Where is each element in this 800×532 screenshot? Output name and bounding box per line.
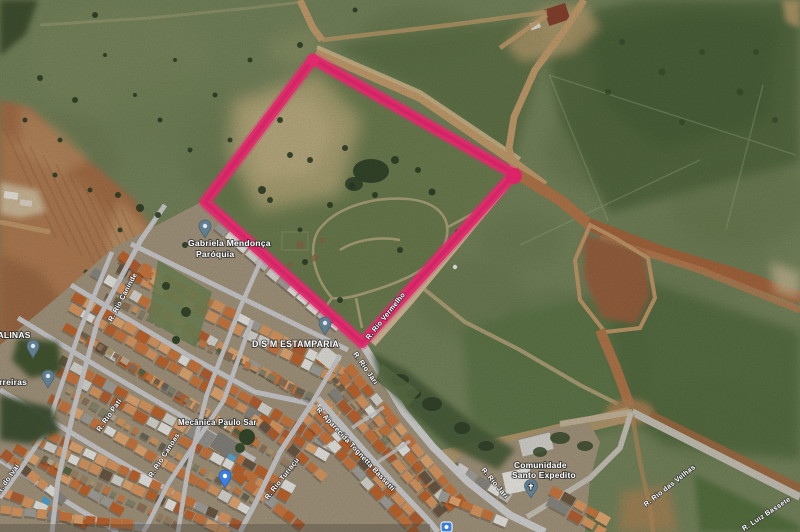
svg-text:D S M ESTAMPARIA: D S M ESTAMPARIA — [252, 339, 339, 349]
svg-text:Comunidade: Comunidade — [514, 460, 567, 470]
svg-text:Paróquia: Paróquia — [196, 249, 234, 259]
svg-text:✝: ✝ — [528, 483, 535, 492]
svg-text:Gabriela Mendonça: Gabriela Mendonça — [188, 238, 271, 248]
svg-text:Santo Expedito: Santo Expedito — [512, 470, 576, 480]
svg-text:Mecânica Paulo Sar: Mecânica Paulo Sar — [178, 418, 257, 427]
svg-text:GIALINAS: GIALINAS — [0, 330, 31, 340]
svg-text:erreiras: erreiras — [0, 377, 27, 387]
